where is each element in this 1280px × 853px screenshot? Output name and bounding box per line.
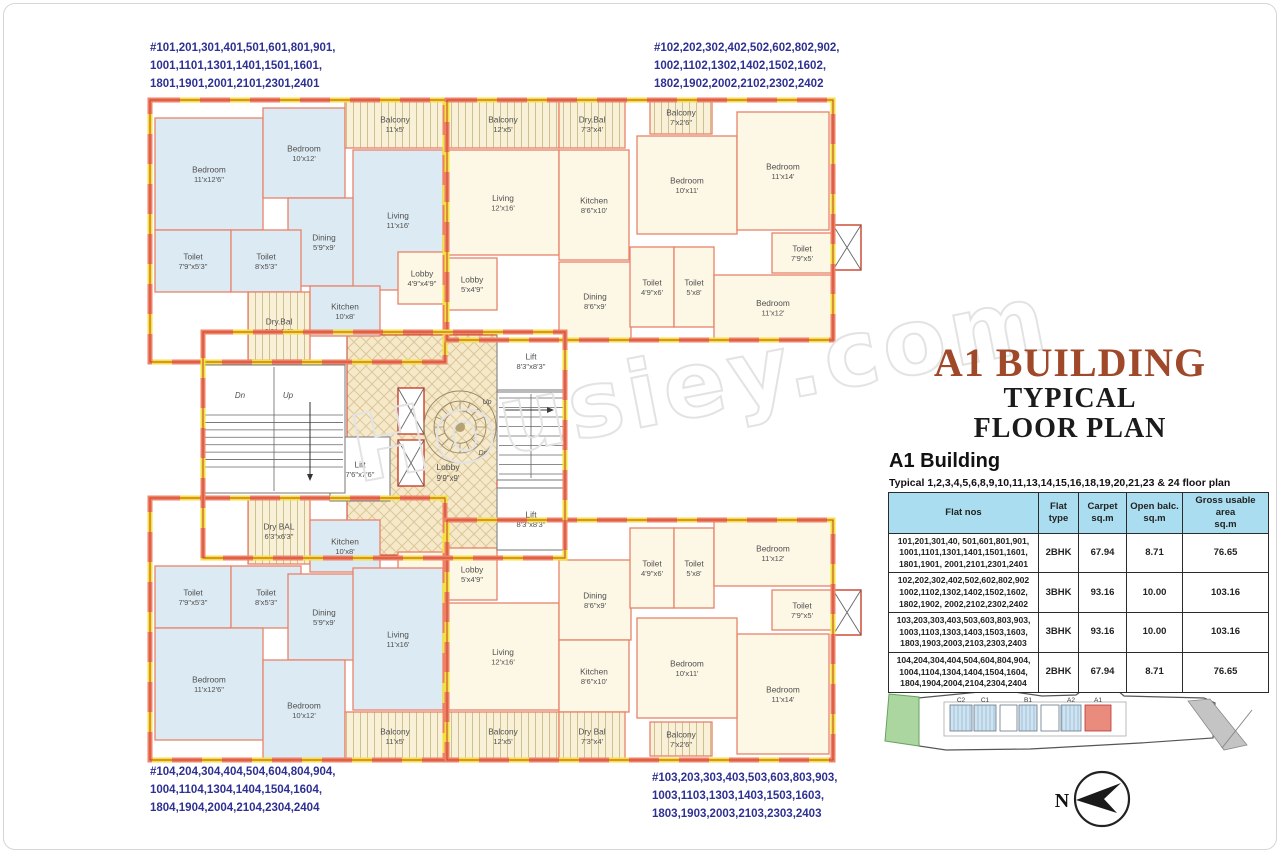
svg-text:12'x16': 12'x16'	[491, 204, 515, 213]
svg-text:Balcony: Balcony	[380, 727, 410, 737]
svg-text:Toilet: Toilet	[684, 278, 704, 288]
svg-text:7'x2'6": 7'x2'6"	[670, 118, 692, 127]
svg-text:4'9"x6': 4'9"x6'	[641, 288, 664, 297]
room: Toilet7'9"x5'3"	[155, 566, 231, 628]
table-cell-flats: 102,202,302,402,502,602,802,902 1002,110…	[889, 573, 1039, 613]
svg-text:Balcony: Balcony	[666, 108, 696, 118]
table-header-cell: Flat nos	[889, 493, 1039, 534]
room: Toilet5'x8'	[674, 247, 714, 327]
table-header-cell: Open balc. sq.m	[1127, 493, 1183, 534]
svg-text:Lift: Lift	[525, 352, 537, 362]
title-floor-plan: FLOOR PLAN	[900, 414, 1240, 444]
svg-text:12'x16': 12'x16'	[491, 658, 515, 667]
svg-text:Toilet: Toilet	[256, 252, 276, 262]
svg-text:Dry.Bal: Dry.Bal	[266, 317, 293, 327]
svg-text:Kitchen: Kitchen	[580, 196, 608, 206]
table-cell-flats: 101,201,301,40, 501,601,801,901, 1001,11…	[889, 533, 1039, 573]
site-plan: C2C1B1A2A1	[885, 684, 1252, 750]
table-cell-carpet: 67.94	[1079, 652, 1127, 692]
svg-text:9'9"x9': 9'9"x9'	[437, 474, 460, 483]
svg-text:Toilet: Toilet	[183, 588, 203, 598]
svg-text:8'x5'3": 8'x5'3"	[255, 598, 277, 607]
table-row: 102,202,302,402,502,602,802,902 1002,110…	[889, 573, 1269, 613]
svg-text:11'x12'6": 11'x12'6"	[194, 175, 224, 184]
room: Toilet7'9"x5'	[772, 233, 832, 273]
room: Bedroom10'x12'	[263, 660, 345, 760]
room: Toilet4'9"x6'	[630, 528, 674, 608]
table-header-cell: Flat type	[1039, 493, 1079, 534]
room: Bedroom10'x12'	[263, 108, 345, 198]
svg-text:Dining: Dining	[583, 591, 607, 601]
room: Balcony11'x5'	[345, 712, 445, 760]
duct-shaft	[398, 440, 424, 486]
flat-numbers-bottom-right: #103,203,303,403,503,603,803,903, 1003,1…	[652, 770, 837, 823]
table-cell-balc: 10.00	[1127, 573, 1183, 613]
svg-text:10'x12': 10'x12'	[292, 154, 316, 163]
svg-text:A1: A1	[1094, 697, 1102, 704]
svg-text:Dn: Dn	[235, 391, 246, 400]
room: Bedroom10'x11'	[637, 618, 737, 718]
room: Dining8'6"x9'	[559, 560, 631, 640]
svg-text:Dining: Dining	[312, 233, 336, 243]
svg-text:Living: Living	[387, 630, 409, 640]
room: Dry.Bal6'3"x6'3"	[248, 292, 310, 360]
svg-text:11'x16': 11'x16'	[386, 221, 410, 230]
svg-text:Lobby: Lobby	[436, 462, 460, 472]
table-cell-type: 3BHK	[1039, 613, 1079, 653]
room: Kitchen8'6"x10'	[559, 640, 629, 712]
svg-text:Toilet: Toilet	[792, 601, 812, 611]
room: Living12'x16'	[447, 603, 559, 710]
svg-text:C1: C1	[981, 697, 990, 704]
table-row: 103,203,303,403,503,603,803,903, 1003,11…	[889, 613, 1269, 653]
svg-text:11'x12': 11'x12'	[761, 554, 785, 563]
room: Toilet8'x5'3"	[231, 230, 301, 292]
svg-text:C2: C2	[957, 697, 966, 704]
svg-text:Dry Bal: Dry Bal	[578, 727, 605, 737]
svg-text:10'x8': 10'x8'	[335, 312, 355, 321]
duct-shaft	[833, 590, 861, 635]
svg-text:Living: Living	[492, 647, 514, 657]
svg-text:7'6"x7'6": 7'6"x7'6"	[346, 470, 375, 479]
table-header-cell: Gross usable area sq.m	[1183, 493, 1269, 534]
room: Lobby4'9"x4'9"	[398, 252, 446, 304]
staircase	[497, 392, 565, 480]
room: Dining5'9"x9'	[288, 574, 360, 660]
svg-text:Lobby: Lobby	[461, 565, 484, 575]
room: Bedroom11'x12'6"	[155, 118, 263, 230]
svg-text:11'x5': 11'x5'	[386, 737, 405, 746]
svg-text:5'x4'9": 5'x4'9"	[461, 285, 483, 294]
room: Balcony7'x2'6"	[650, 100, 712, 134]
svg-text:10'x12': 10'x12'	[292, 711, 316, 720]
svg-text:B1: B1	[1024, 697, 1032, 704]
room: Dry BAL6'3"x6'3"	[248, 498, 310, 564]
room: Toilet7'9"x5'	[772, 590, 832, 630]
svg-text:Bedroom: Bedroom	[756, 298, 790, 308]
room: Bedroom11'x12'6"	[155, 628, 263, 740]
svg-text:8'6"x9': 8'6"x9'	[584, 302, 607, 311]
svg-text:Up: Up	[483, 399, 492, 406]
svg-text:7'3"x4': 7'3"x4'	[581, 737, 604, 746]
room: Bedroom10'x11'	[637, 136, 737, 234]
area-table-head: Flat nosFlat typeCarpet sq.mOpen balc. s…	[889, 493, 1269, 534]
compass-north-label: N	[1055, 790, 1070, 812]
table-subtitle: Typical 1,2,3,4,5,6,8,9,10,11,13,14,15,1…	[889, 477, 1230, 489]
room: Bedroom11'x12'	[714, 275, 832, 340]
svg-text:Balcony: Balcony	[488, 115, 518, 125]
svg-text:Dining: Dining	[312, 608, 336, 618]
table-cell-flats: 104,204,304,404,504,604,804,904, 1004,11…	[889, 652, 1039, 692]
title-block: A1 BUILDING TYPICAL FLOOR PLAN	[900, 342, 1240, 444]
area-table: Flat nosFlat typeCarpet sq.mOpen balc. s…	[888, 492, 1269, 693]
svg-text:Balcony: Balcony	[380, 115, 410, 125]
svg-text:5'9"x9': 5'9"x9'	[313, 243, 336, 252]
table-cell-balc: 8.71	[1127, 652, 1183, 692]
site-building	[1000, 705, 1017, 731]
table-cell-gross: 103.16	[1183, 573, 1269, 613]
svg-text:11'x12'6": 11'x12'6"	[194, 685, 224, 694]
svg-text:Living: Living	[387, 211, 409, 221]
table-cell-balc: 8.71	[1127, 533, 1183, 573]
title-typical: TYPICAL	[900, 384, 1240, 414]
svg-text:7'x2'6": 7'x2'6"	[670, 740, 692, 749]
svg-text:5'9"x9': 5'9"x9'	[313, 618, 336, 627]
svg-text:Kitchen: Kitchen	[331, 302, 359, 312]
svg-text:5'x4'9": 5'x4'9"	[461, 575, 483, 584]
svg-text:Bedroom: Bedroom	[287, 144, 321, 154]
svg-text:Dn: Dn	[479, 450, 488, 457]
svg-text:11'x12': 11'x12'	[761, 309, 785, 318]
svg-text:Toilet: Toilet	[642, 278, 662, 288]
svg-text:Bedroom: Bedroom	[192, 675, 226, 685]
svg-text:Lift: Lift	[354, 460, 366, 470]
svg-text:4'9"x4'9": 4'9"x4'9"	[408, 279, 437, 288]
table-row: 101,201,301,40, 501,601,801,901, 1001,11…	[889, 533, 1269, 573]
svg-text:10'x11': 10'x11'	[675, 669, 699, 678]
svg-text:Kitchen: Kitchen	[580, 667, 608, 677]
svg-text:Toilet: Toilet	[684, 559, 704, 569]
svg-text:10'x11': 10'x11'	[675, 186, 699, 195]
svg-text:12'x5': 12'x5'	[493, 125, 513, 134]
room: Balcony11'x5'	[345, 100, 445, 148]
table-cell-carpet: 67.94	[1079, 533, 1127, 573]
svg-text:10'x8': 10'x8'	[335, 547, 355, 556]
site-green-area	[885, 694, 919, 746]
table-cell-flats: 103,203,303,403,503,603,803,903, 1003,11…	[889, 613, 1039, 653]
room: Living11'x16'	[353, 568, 443, 710]
svg-text:A2: A2	[1067, 697, 1075, 704]
table-cell-type: 2BHK	[1039, 652, 1079, 692]
room: Kitchen10'x8'	[310, 286, 380, 336]
building-title: A1 BUILDING	[900, 342, 1240, 384]
room: Balcony12'x5'	[447, 100, 559, 148]
svg-text:11'x5': 11'x5'	[386, 125, 405, 134]
table-header-cell: Carpet sq.m	[1079, 493, 1127, 534]
room: Dry.Bal7'3"x4'	[559, 100, 625, 148]
table-cell-gross: 76.65	[1183, 533, 1269, 573]
svg-text:6'3"x6'3": 6'3"x6'3"	[265, 532, 294, 541]
svg-text:Bedroom: Bedroom	[756, 544, 790, 554]
svg-text:5'x8': 5'x8'	[686, 288, 702, 297]
svg-text:Living: Living	[492, 193, 514, 203]
flat-numbers-top-right: #102,202,302,402,502,602,802,902, 1002,1…	[654, 40, 839, 93]
table-cell-type: 3BHK	[1039, 573, 1079, 613]
svg-text:11'x14': 11'x14'	[771, 695, 795, 704]
room: Toilet7'9"x5'3"	[155, 230, 231, 292]
floor-plan-drawing: Bedroom11'x12'6"Bedroom10'x12'Balcony11'…	[150, 100, 861, 760]
svg-text:Lobby: Lobby	[461, 275, 484, 285]
svg-text:8'3"x8'3": 8'3"x8'3"	[517, 362, 546, 371]
room: Toilet5'x8'	[674, 528, 714, 608]
table-cell-carpet: 93.16	[1079, 573, 1127, 613]
room: Toilet4'9"x6'	[630, 247, 674, 327]
svg-text:Dry BAL: Dry BAL	[264, 522, 295, 532]
table-cell-gross: 76.65	[1183, 652, 1269, 692]
svg-text:11'x14': 11'x14'	[771, 172, 795, 181]
table-cell-type: 2BHK	[1039, 533, 1079, 573]
svg-text:8'6"x9': 8'6"x9'	[584, 601, 607, 610]
room: Lobby5'x4'9"	[447, 258, 497, 310]
room: Dining8'6"x9'	[559, 262, 631, 340]
svg-text:4'9"x6': 4'9"x6'	[641, 569, 664, 578]
area-table-body: 101,201,301,40, 501,601,801,901, 1001,11…	[889, 533, 1269, 692]
svg-text:11'x16': 11'x16'	[386, 640, 410, 649]
compass: N	[1055, 772, 1129, 826]
svg-text:Bedroom: Bedroom	[287, 701, 321, 711]
duct-shaft	[833, 225, 861, 270]
duct-shaft	[398, 388, 424, 434]
room: Bedroom11'x14'	[737, 634, 829, 754]
svg-text:Balcony: Balcony	[666, 730, 696, 740]
room: Bedroom11'x12'	[714, 520, 832, 586]
table-row: 104,204,304,404,504,604,804,904, 1004,11…	[889, 652, 1269, 692]
svg-text:7'9"x5': 7'9"x5'	[791, 611, 814, 620]
svg-text:Bedroom: Bedroom	[766, 685, 800, 695]
room: Balcony12'x5'	[447, 712, 559, 760]
svg-text:Dining: Dining	[583, 292, 607, 302]
svg-text:Bedroom: Bedroom	[670, 176, 704, 186]
svg-text:8'6"x10': 8'6"x10'	[581, 206, 608, 215]
svg-text:Bedroom: Bedroom	[670, 659, 704, 669]
table-heading: A1 Building	[889, 450, 1000, 473]
svg-text:Kitchen: Kitchen	[331, 537, 359, 547]
room: Bedroom11'x14'	[737, 112, 829, 230]
table-cell-carpet: 93.16	[1079, 613, 1127, 653]
svg-text:Toilet: Toilet	[183, 252, 203, 262]
room: Dry Bal7'3"x4'	[559, 712, 625, 760]
svg-text:Dry.Bal: Dry.Bal	[579, 115, 606, 125]
svg-text:Toilet: Toilet	[256, 588, 276, 598]
svg-text:7'3"x4': 7'3"x4'	[581, 125, 604, 134]
svg-text:Up: Up	[283, 391, 294, 400]
svg-text:8'6"x10': 8'6"x10'	[581, 677, 608, 686]
svg-text:7'9"x5'3": 7'9"x5'3"	[179, 598, 208, 607]
table-cell-gross: 103.16	[1183, 613, 1269, 653]
table-cell-balc: 10.00	[1127, 613, 1183, 653]
staircase	[203, 365, 345, 493]
room: Balcony7'x2'6"	[650, 722, 712, 756]
svg-text:5'x8': 5'x8'	[686, 569, 702, 578]
room: Living12'x16'	[447, 150, 559, 255]
room: Kitchen8'6"x10'	[559, 150, 629, 260]
svg-text:Bedroom: Bedroom	[192, 165, 226, 175]
svg-text:Bedroom: Bedroom	[766, 162, 800, 172]
room: Kitchen10'x8'	[310, 520, 380, 572]
flat-numbers-top-left: #101,201,301,401,501,601,801,901, 1001,1…	[150, 40, 335, 93]
svg-text:12'x5': 12'x5'	[493, 737, 513, 746]
flat-numbers-bottom-left: #104,204,304,404,504,604,804,904, 1004,1…	[150, 764, 335, 817]
svg-text:7'9"x5': 7'9"x5'	[791, 254, 814, 263]
svg-text:Lobby: Lobby	[411, 269, 434, 279]
svg-text:7'9"x5'3": 7'9"x5'3"	[179, 262, 208, 271]
svg-text:Toilet: Toilet	[792, 244, 812, 254]
site-building	[1041, 705, 1059, 731]
svg-text:8'x5'3": 8'x5'3"	[255, 262, 277, 271]
svg-text:Toilet: Toilet	[642, 559, 662, 569]
north-arrow-icon	[1076, 783, 1121, 813]
svg-text:Balcony: Balcony	[488, 727, 518, 737]
